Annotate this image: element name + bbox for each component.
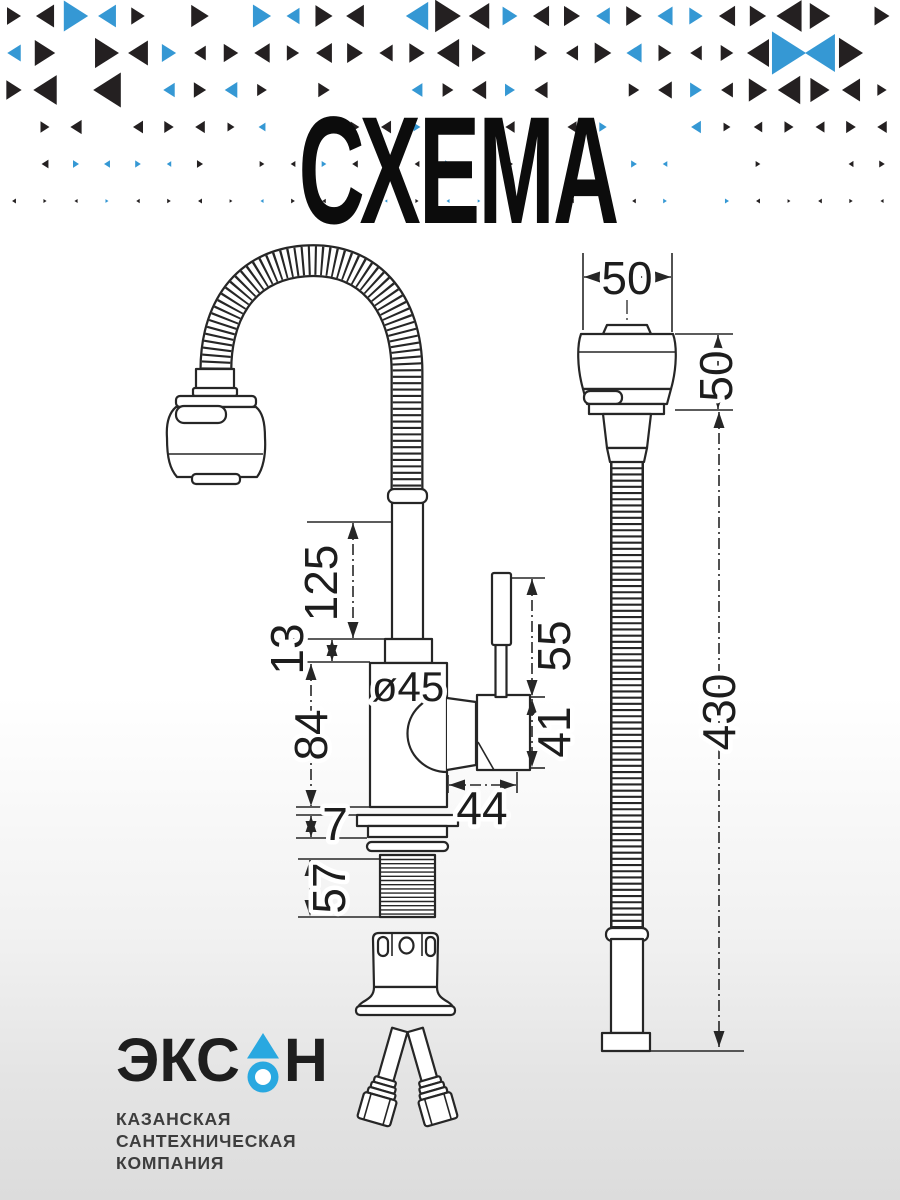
dim-label-cap-height: 13 <box>261 623 313 674</box>
supply-hose-left <box>357 1025 416 1127</box>
dim-label-lever-height: 55 <box>528 620 580 671</box>
dim-label-head-width: 50 <box>601 252 652 304</box>
dimension-arrow <box>713 335 724 351</box>
tagline-line-3: КОМПАНИЯ <box>116 1152 328 1174</box>
threaded-stud <box>380 855 435 917</box>
faucet-riser <box>385 489 432 663</box>
spray-head-detail <box>578 300 676 462</box>
hose-detail <box>602 461 744 1051</box>
product-scheme-image: СХЕМА <box>0 0 900 1200</box>
dim-label-hose-length: 430 <box>693 674 745 751</box>
mounting-nut <box>356 933 455 1015</box>
dimension-arrow <box>348 622 359 638</box>
tagline-line-2: САНТЕХНИЧЕСКАЯ <box>116 1130 328 1152</box>
dimension-arrow <box>527 680 538 696</box>
logo-text-prefix: ЭКС <box>116 1030 240 1091</box>
dim-label-head-height: 50 <box>690 350 742 401</box>
dim-label-flange-height: 7 <box>322 798 348 850</box>
dimension-arrow <box>584 272 600 283</box>
handle-grip <box>492 573 511 645</box>
handle <box>447 573 530 770</box>
supply-hose-right <box>399 1025 458 1127</box>
dim-label-thread-length: 57 <box>303 862 355 913</box>
dim-label-spout-pipe-height: 125 <box>295 545 347 622</box>
aerator <box>192 474 240 484</box>
faucet-technical-drawing: 125 13 84 7 57 ø45 55 41 44 50 50 430 <box>0 0 900 1200</box>
water-drop-icon <box>243 1032 283 1096</box>
dimension-arrow <box>527 579 538 595</box>
dimension-arrow <box>306 790 317 806</box>
dimension-arrow <box>714 412 725 428</box>
spray-mode-button <box>176 406 226 423</box>
dim-label-handle-length: 44 <box>456 782 507 834</box>
logo-text-suffix: Н <box>284 1030 328 1091</box>
dim-label-handle-height: 41 <box>528 706 580 757</box>
spray-mode-button <box>584 391 622 404</box>
company-tagline: КАЗАНСКАЯ САНТЕХНИЧЕСКАЯ КОМПАНИЯ <box>116 1108 328 1174</box>
company-logo-name: ЭКС Н <box>116 1030 328 1096</box>
spray-head <box>167 369 265 484</box>
supply-hoses <box>357 1025 458 1127</box>
dimension-arrow <box>714 1031 725 1047</box>
dimension-arrow <box>655 272 671 283</box>
base-flange <box>357 815 458 851</box>
dim-label-body-height: 84 <box>285 709 337 760</box>
tagline-line-1: КАЗАНСКАЯ <box>116 1108 328 1130</box>
dim-label-body-diameter: ø45 <box>372 663 444 710</box>
dimension-arrow <box>348 523 359 539</box>
company-logo: ЭКС Н КАЗАНСКАЯ САНТЕХНИЧЕСКАЯ КОМПАНИЯ <box>116 1030 328 1174</box>
